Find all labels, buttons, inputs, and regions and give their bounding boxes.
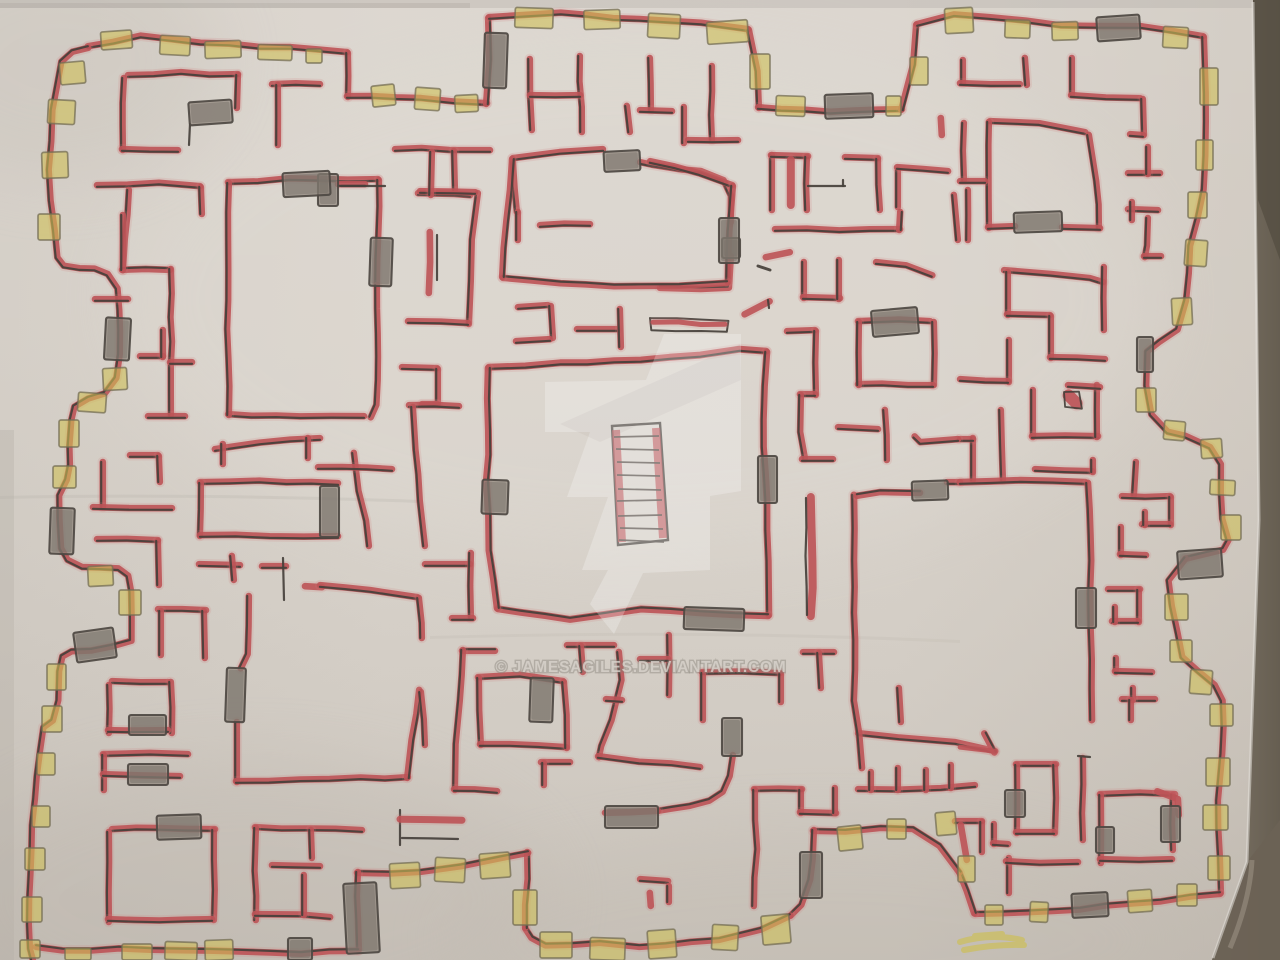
svg-text:© JAMESAGILES.DEVIANTART.COM: © JAMESAGILES.DEVIANTART.COM — [495, 659, 786, 676]
